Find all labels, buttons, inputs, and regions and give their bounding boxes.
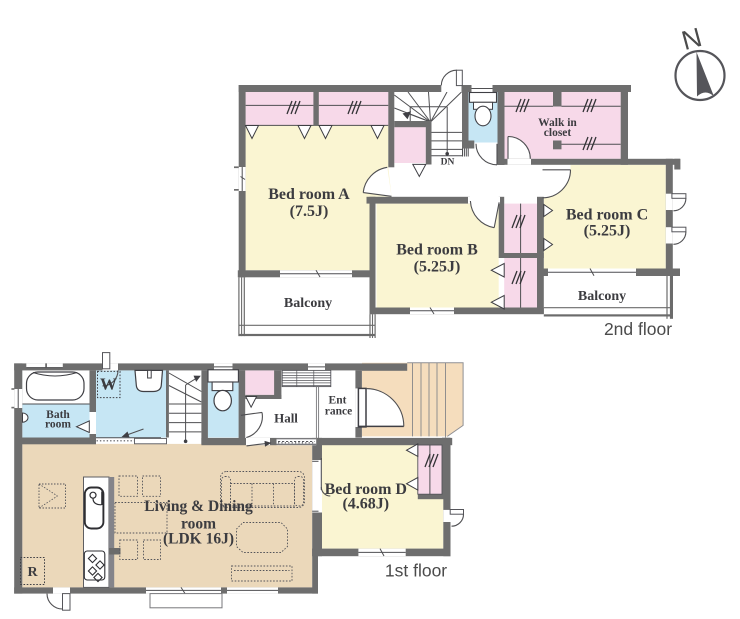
svg-text:Bed room C: Bed room C xyxy=(566,206,648,223)
svg-text:W: W xyxy=(100,375,117,394)
svg-text:Bed room B: Bed room B xyxy=(396,242,478,259)
svg-text:DN: DN xyxy=(441,157,455,167)
svg-text:closet: closet xyxy=(544,127,572,139)
svg-text:Hall: Hall xyxy=(274,411,298,426)
svg-text:Balcony: Balcony xyxy=(284,296,332,311)
svg-text:room: room xyxy=(45,419,71,431)
svg-text:(5.25J): (5.25J) xyxy=(414,259,461,276)
svg-text:(4.68J): (4.68J) xyxy=(342,496,389,513)
svg-text:(LDK 16J): (LDK 16J) xyxy=(163,531,234,548)
svg-text:(5.25J): (5.25J) xyxy=(584,223,631,240)
svg-text:rance: rance xyxy=(325,406,352,418)
svg-text:R: R xyxy=(27,565,38,580)
svg-text:Balcony: Balcony xyxy=(578,289,626,304)
svg-text:2nd floor: 2nd floor xyxy=(604,319,672,339)
svg-text:Bed room A: Bed room A xyxy=(268,186,350,203)
svg-text:(7.5J): (7.5J) xyxy=(290,203,329,220)
svg-text:Living & Dining: Living & Dining xyxy=(144,498,253,515)
svg-text:1st floor: 1st floor xyxy=(385,560,447,580)
